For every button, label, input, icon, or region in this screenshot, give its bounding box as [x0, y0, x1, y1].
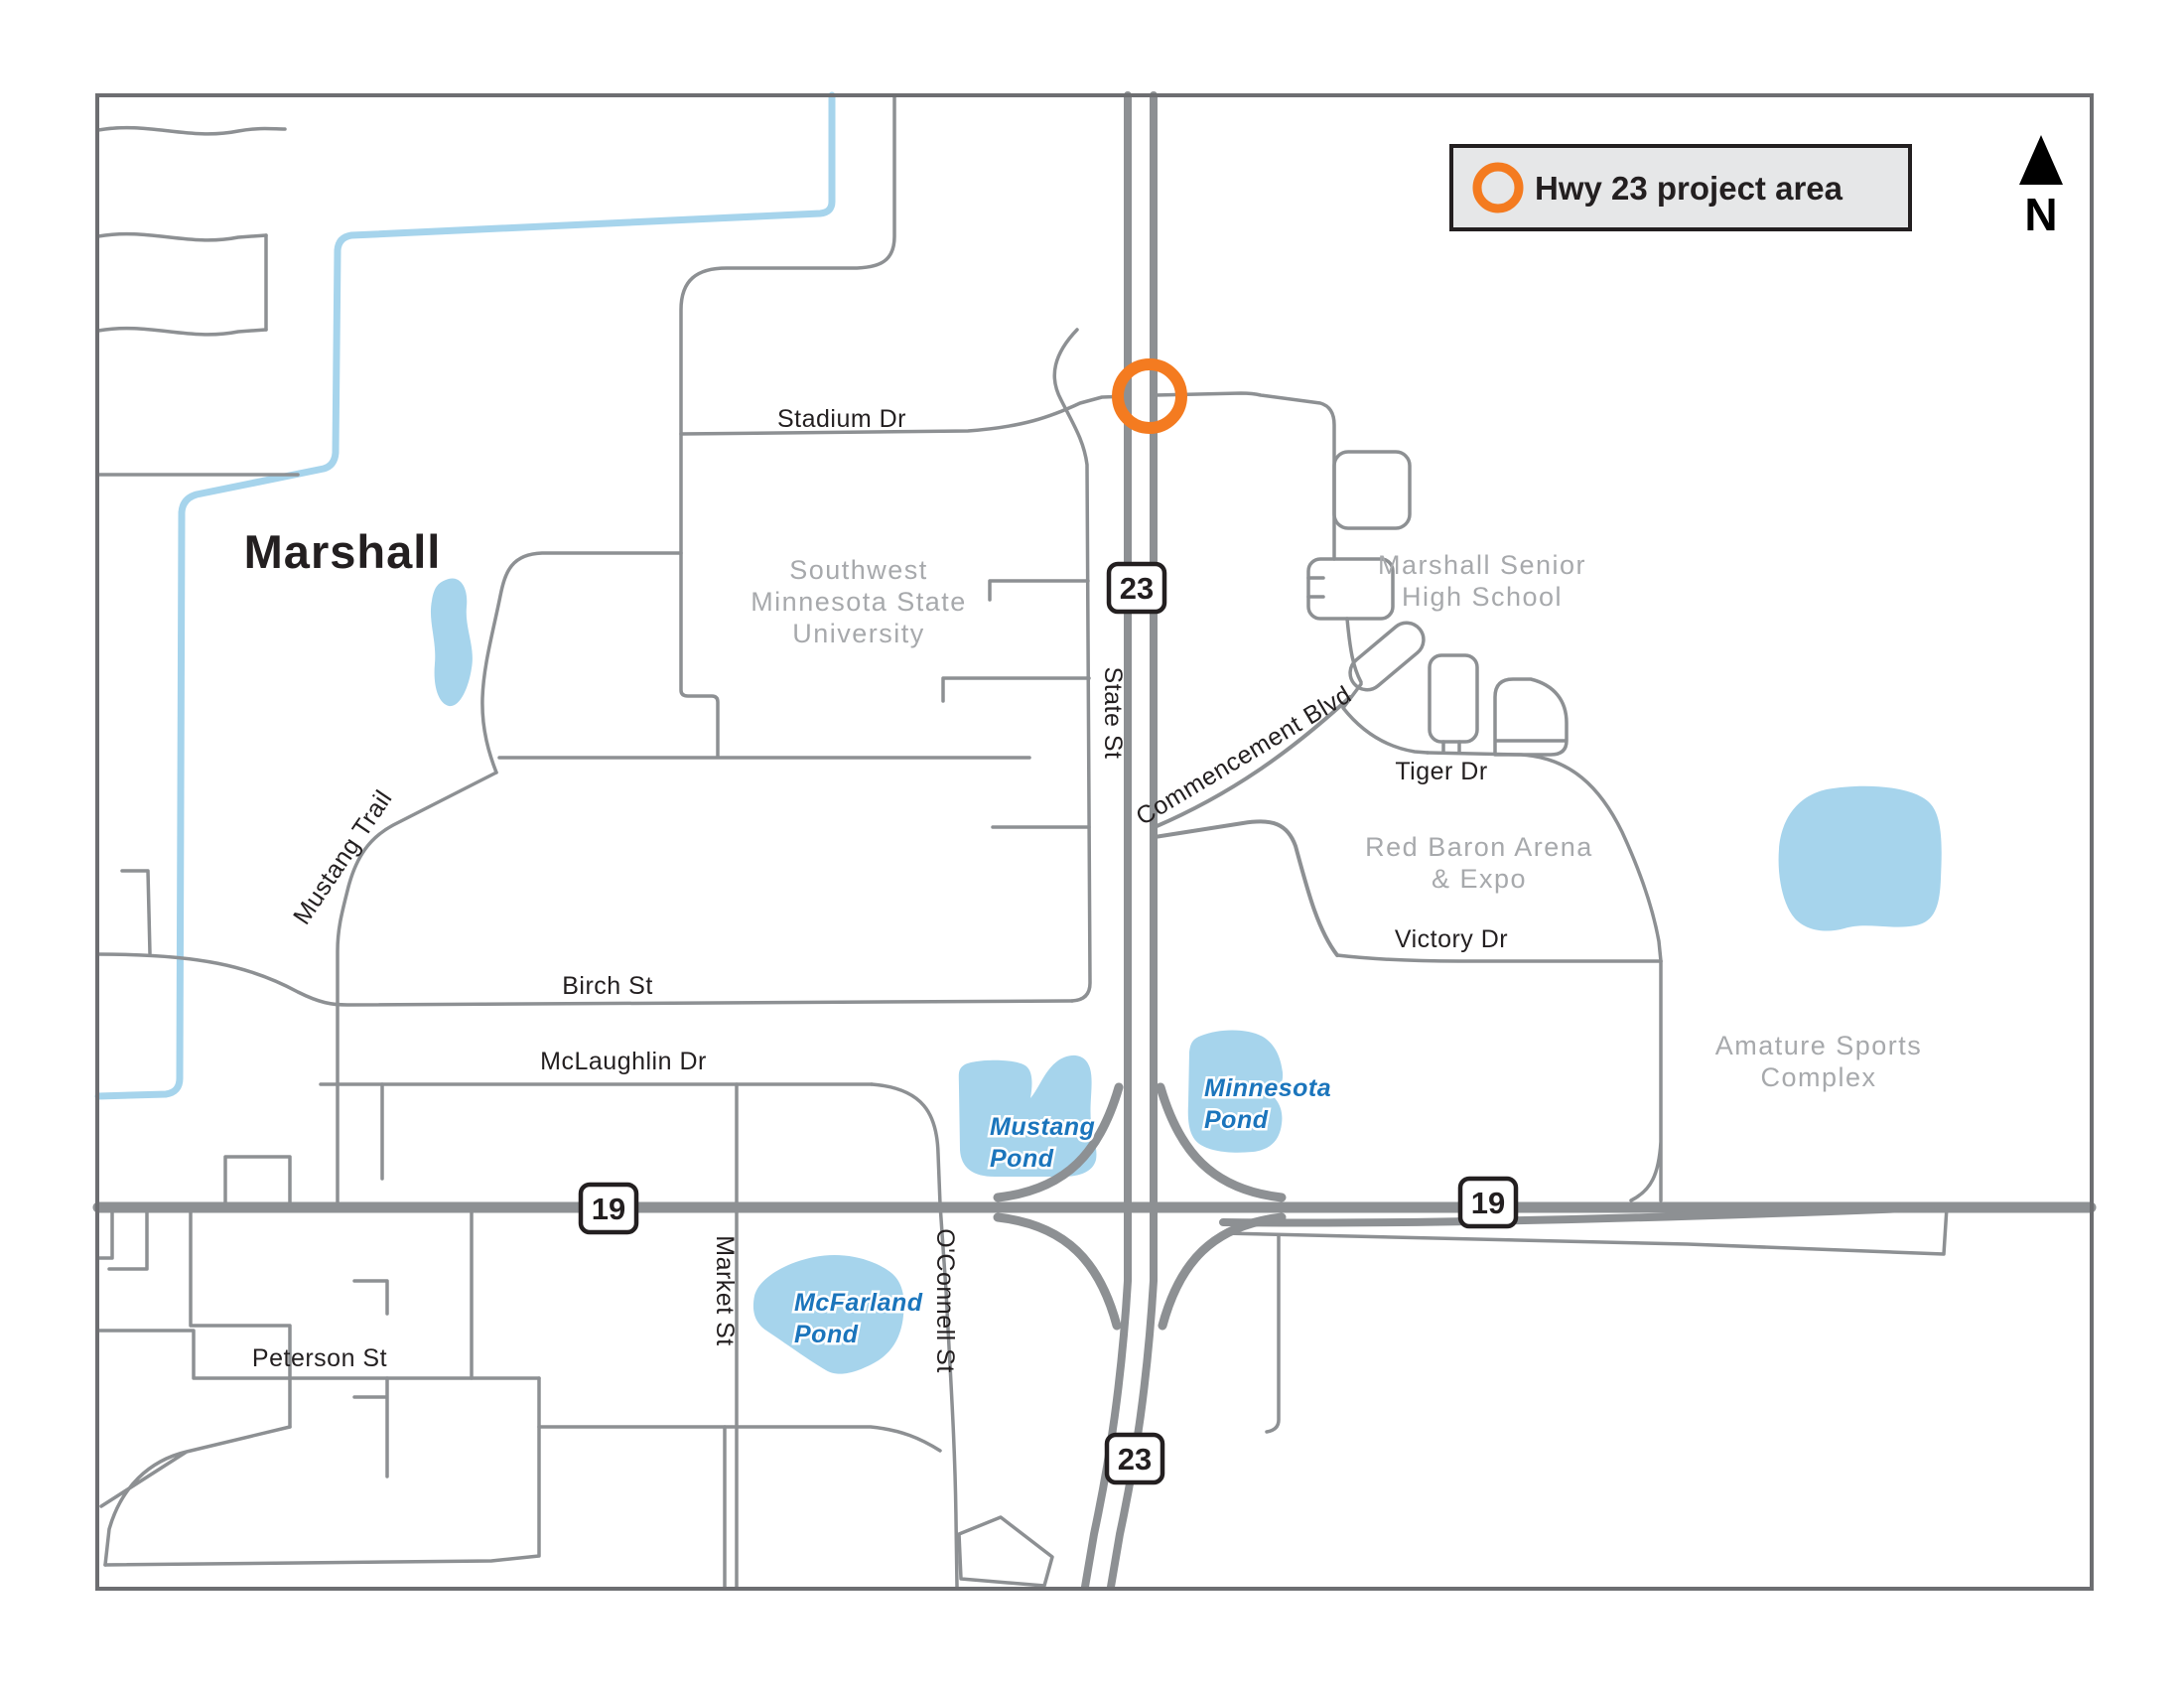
north-arrow: N [2019, 135, 2063, 240]
victory-dr-road [1337, 955, 1661, 961]
minnesota-pond-label-line2: Pond [1204, 1106, 1269, 1134]
high-school-area-label: Marshall Senior High School [1378, 550, 1586, 612]
hwy23-south-shield: 23 [1107, 1435, 1162, 1482]
campus-street-2 [943, 678, 1089, 701]
nw-street-3 [98, 329, 266, 335]
tiger-dr-label: Tiger Dr [1395, 758, 1487, 785]
east-building-loop [1495, 679, 1567, 755]
campus-street-1 [990, 581, 1088, 600]
small-west-pond [431, 579, 473, 707]
water-layer [98, 95, 1942, 1374]
campus-loop-road [482, 553, 681, 773]
hwy19-east-shield: 19 [1460, 1179, 1516, 1226]
victory-to-19-road [1631, 961, 1661, 1200]
hwy23-west-line [1085, 95, 1128, 1587]
hwy19-west-shield: 19 [581, 1185, 636, 1232]
hwy19-west-shield-number: 19 [592, 1192, 625, 1226]
state-st-label: State St [1099, 667, 1127, 760]
se-frontage-stub [1267, 1236, 1279, 1432]
sw-l-street-3 [191, 1209, 290, 1427]
compass-label: N [2024, 189, 2057, 240]
north-arrow-icon [2019, 135, 2063, 185]
hwy19-east-shield-number: 19 [1471, 1186, 1505, 1220]
school-north-block [1334, 452, 1410, 528]
sw-bottom-road [105, 1378, 539, 1565]
sports-complex-label-line2: Complex [1760, 1062, 1876, 1092]
mustang-pond-label-line1: Mustang [990, 1113, 1095, 1141]
map-page: 23 23 19 19 Marshall Stadium Dr State St… [0, 0, 2184, 1688]
mustang-pond-label-line2: Pond [990, 1145, 1054, 1173]
minnesota-pond-label-line1: Minnesota [1204, 1074, 1331, 1102]
smsu-label-line1: Southwest [789, 555, 928, 585]
school-building-ticks [1308, 578, 1323, 597]
nw-street-2 [98, 234, 266, 240]
red-baron-label-line2: & Expo [1432, 864, 1527, 894]
sw-street-5 [354, 1378, 387, 1477]
mcfarland-pond-label-line1: McFarland [794, 1289, 923, 1317]
commencement-blvd-south-line [1155, 821, 1337, 955]
legend-label: Hwy 23 project area [1535, 170, 1843, 207]
hwy23-north-shield: 23 [1109, 564, 1164, 612]
west-hook-street [122, 871, 150, 953]
tiger-dr-west-link [1343, 684, 1428, 753]
hwy23-south-shield-number: 23 [1118, 1442, 1152, 1477]
hwy23-north-shield-number: 23 [1120, 571, 1154, 606]
peterson-st-label: Peterson St [252, 1344, 387, 1372]
commencement-blvd-label: Commencement Blvd [1132, 680, 1357, 830]
mclaughlin-dr-label: McLaughlin Dr [540, 1048, 707, 1075]
red-baron-label-line1: Red Baron Arena [1365, 832, 1593, 862]
stadium-dr-label: Stadium Dr [777, 405, 906, 433]
sports-complex-label-line1: Amature Sports [1715, 1031, 1923, 1060]
sports-complex-area-label: Amature Sports Complex [1715, 1031, 1923, 1092]
smsu-area-label: Southwest Minnesota State University [751, 555, 967, 648]
stadium-dr-east-road [1155, 393, 1334, 559]
south-pentagon-block [959, 1517, 1052, 1586]
smsu-label-line2: Minnesota State [751, 587, 967, 617]
east-lake-shape [1779, 786, 1942, 931]
nw-street-1 [98, 128, 285, 134]
market-st-label: Market St [711, 1235, 739, 1345]
high-school-label-line1: Marshall Senior [1378, 550, 1586, 580]
oconnell-st-label: O'Connell St [931, 1228, 959, 1373]
marshall-project-map: 23 23 19 19 Marshall Stadium Dr State St… [0, 0, 2184, 1688]
sw-diagonal-road [101, 1427, 290, 1565]
block-above-19 [225, 1157, 290, 1206]
sw-l-street-2 [109, 1209, 147, 1269]
city-label: Marshall [244, 525, 442, 578]
red-baron-area-label: Red Baron Arena & Expo [1365, 832, 1593, 894]
mcfarland-pond-label-line2: Pond [794, 1321, 859, 1348]
victory-dr-label: Victory Dr [1395, 925, 1508, 953]
state-st-road [1054, 330, 1090, 1001]
legend-box: Hwy 23 project area [1451, 146, 1910, 229]
sw-l-street-1 [98, 1209, 112, 1258]
south-cross-road [539, 1427, 940, 1451]
stadium-oval [1343, 616, 1431, 696]
birch-st-label: Birch St [562, 972, 653, 1000]
smsu-label-line3: University [792, 619, 925, 648]
high-school-label-line2: High School [1402, 582, 1563, 612]
interchange-ramp-sw [998, 1217, 1117, 1326]
arena-building-loop [1430, 655, 1477, 742]
